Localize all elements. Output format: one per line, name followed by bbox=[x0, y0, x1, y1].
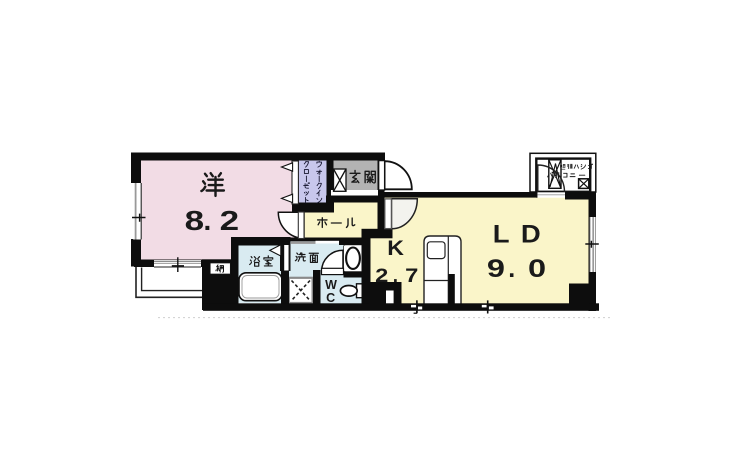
svg-text:9: 9 bbox=[487, 255, 505, 283]
svg-text:7: 7 bbox=[405, 265, 418, 286]
svg-text:2: 2 bbox=[220, 204, 239, 236]
svg-text:C: C bbox=[326, 291, 335, 305]
svg-text:W: W bbox=[325, 278, 337, 292]
svg-text:.: . bbox=[204, 205, 212, 236]
svg-text:.: . bbox=[508, 255, 515, 283]
svg-text:L: L bbox=[493, 220, 510, 249]
svg-text:.: . bbox=[393, 266, 398, 287]
svg-text:8: 8 bbox=[185, 204, 204, 236]
svg-text:K: K bbox=[387, 236, 404, 260]
svg-text:2: 2 bbox=[375, 265, 388, 286]
svg-text:D: D bbox=[521, 220, 541, 249]
svg-text:0: 0 bbox=[528, 255, 546, 283]
